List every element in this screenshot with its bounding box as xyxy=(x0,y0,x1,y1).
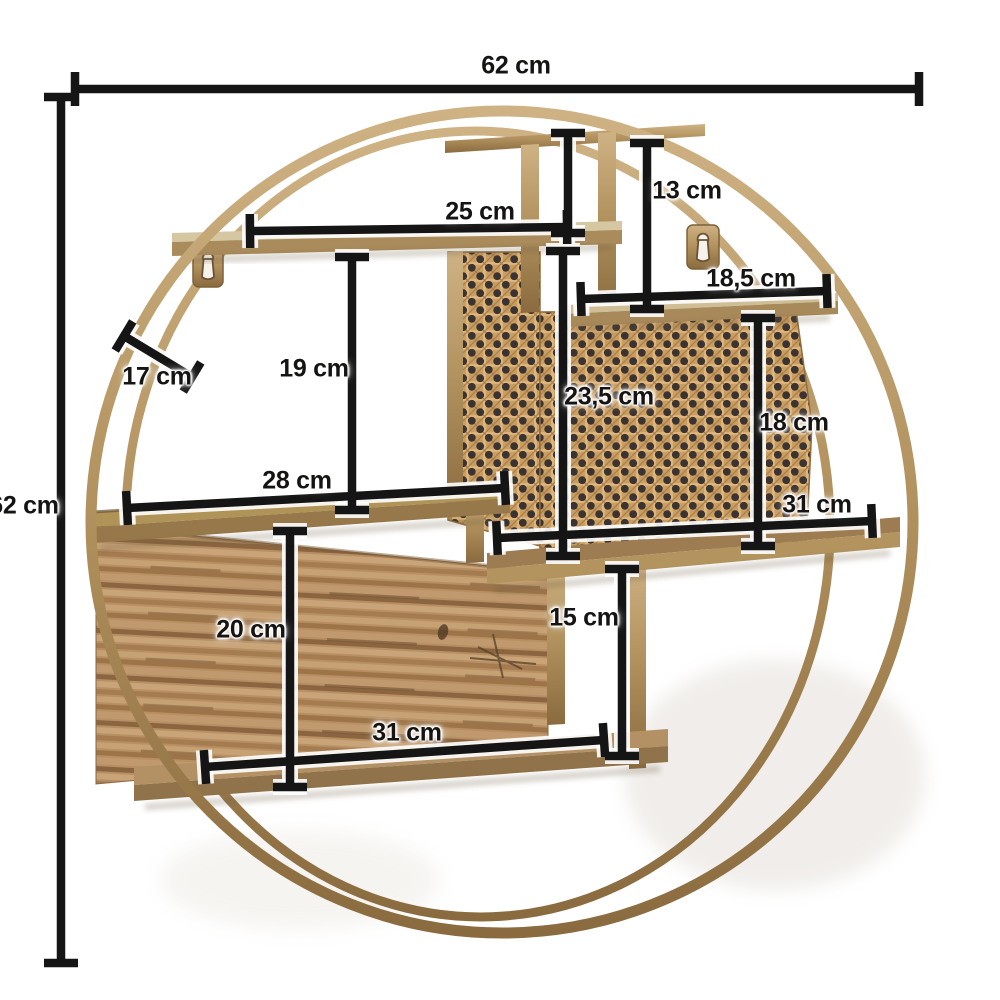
post xyxy=(447,251,463,516)
dim-middle-shelf-width-cap xyxy=(126,491,128,525)
dim-bottom-shelf-width-cap xyxy=(204,750,206,784)
dim-frame-depth-line xyxy=(124,336,192,377)
dim-upper-right-shelf-width-cap xyxy=(580,282,581,316)
dim-upper-right-shelf-width-cap xyxy=(826,274,827,308)
keyhole-mount-right xyxy=(687,225,719,269)
dim-middle-right-shelf-width-cap xyxy=(871,504,873,538)
dim-top-shelf-width-line xyxy=(250,227,567,231)
dim-middle-shelf-width-cap xyxy=(504,471,506,505)
dim-middle-right-shelf-width-cap xyxy=(496,521,498,555)
product-dimension-diagram: 62 cm 62 cm 25 cm 13 cm 18,5 cm 17 cm 19… xyxy=(0,0,1000,1000)
shelf-illustration xyxy=(0,0,1000,1000)
dim-bottom-shelf-width-cap xyxy=(603,723,605,757)
